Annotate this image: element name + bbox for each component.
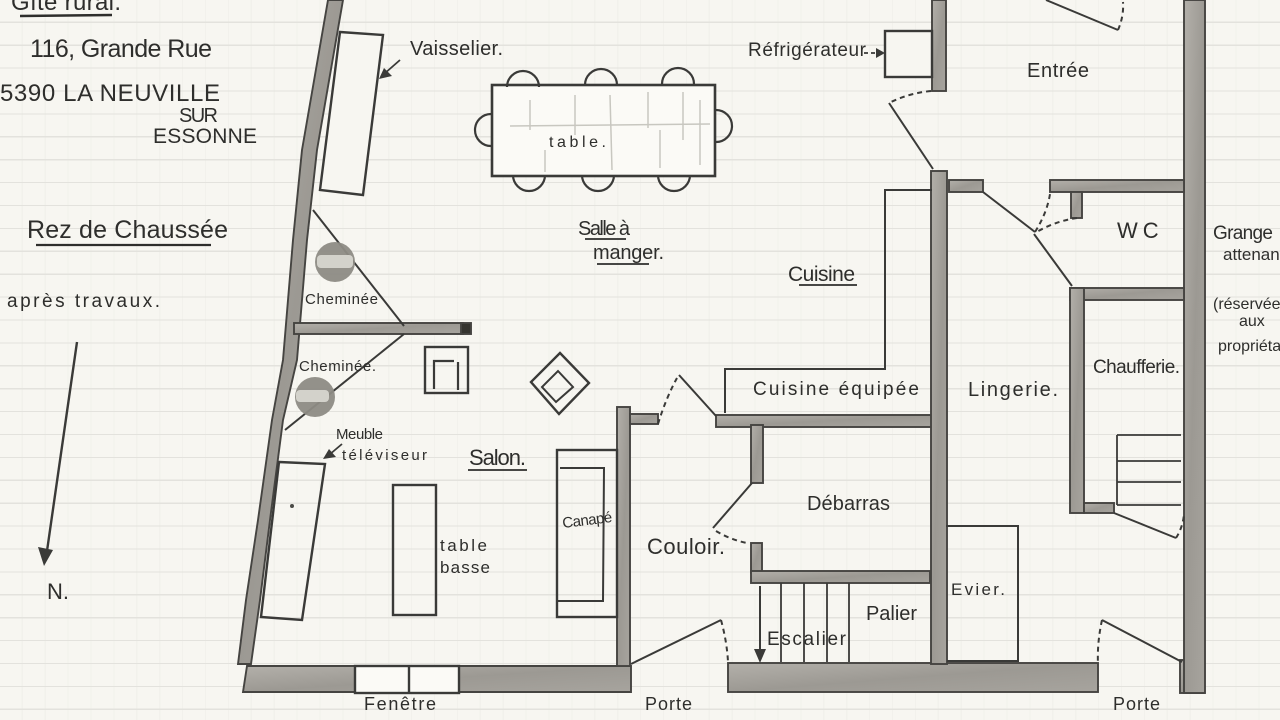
svg-text:116, Grande Rue: 116, Grande Rue (30, 35, 212, 63)
svg-text:Salon.: Salon. (469, 445, 526, 470)
svg-text:Rez de Chaussée: Rez de Chaussée (27, 216, 228, 244)
svg-text:Porte: Porte (1113, 694, 1160, 714)
svg-text:Chaufferie.: Chaufferie. (1093, 357, 1180, 378)
svg-text:Grange: Grange (1213, 223, 1273, 244)
svg-text:Cheminée.: Cheminée. (299, 358, 376, 375)
svg-text:Fenêtre: Fenêtre (364, 694, 436, 714)
svg-text:Meuble: Meuble (336, 426, 383, 443)
svg-text:SUR: SUR (179, 105, 218, 127)
svg-text:basse: basse (440, 558, 490, 577)
svg-text:Porte: Porte (645, 694, 692, 714)
svg-text:propriétaires): propriétaires) (1218, 338, 1280, 355)
svg-text:WC: WC (1117, 218, 1164, 243)
svg-text:aux: aux (1239, 313, 1265, 330)
svg-text:attenante: attenante (1223, 245, 1280, 264)
svg-text:Couloir.: Couloir. (647, 534, 725, 559)
svg-text:Cuisine équipée: Cuisine équipée (753, 379, 919, 400)
svg-text:manger.: manger. (593, 242, 664, 264)
svg-text:Gîte rural.: Gîte rural. (11, 0, 121, 16)
svg-text:table: table (440, 536, 487, 555)
svg-text:(réservée: (réservée (1213, 296, 1280, 313)
svg-text:Cuisine: Cuisine (788, 263, 855, 286)
svg-text:Salle à: Salle à (578, 218, 631, 240)
svg-text:Escalier: Escalier (767, 629, 847, 650)
svg-text:ESSONNE: ESSONNE (153, 125, 257, 148)
svg-text:Entrée: Entrée (1027, 60, 1089, 82)
svg-text:Canapé: Canapé (561, 509, 613, 532)
svg-text:Débarras: Débarras (807, 493, 890, 515)
svg-text:Vaisselier.: Vaisselier. (410, 38, 503, 60)
svg-text:table.: table. (549, 134, 606, 151)
svg-text:Evier.: Evier. (951, 580, 1005, 599)
svg-text:Cheminée: Cheminée (305, 291, 378, 308)
svg-text:Palier: Palier (866, 603, 917, 625)
svg-text:Lingerie.: Lingerie. (968, 379, 1058, 401)
svg-text:après travaux.: après travaux. (7, 291, 160, 312)
svg-text:Réfrigérateur: Réfrigérateur (748, 40, 867, 61)
svg-text:45390 LA NEUVILLE: 45390 LA NEUVILLE (0, 80, 220, 107)
svg-text:téléviseur: téléviseur (342, 447, 427, 464)
svg-text:N.: N. (47, 579, 69, 604)
